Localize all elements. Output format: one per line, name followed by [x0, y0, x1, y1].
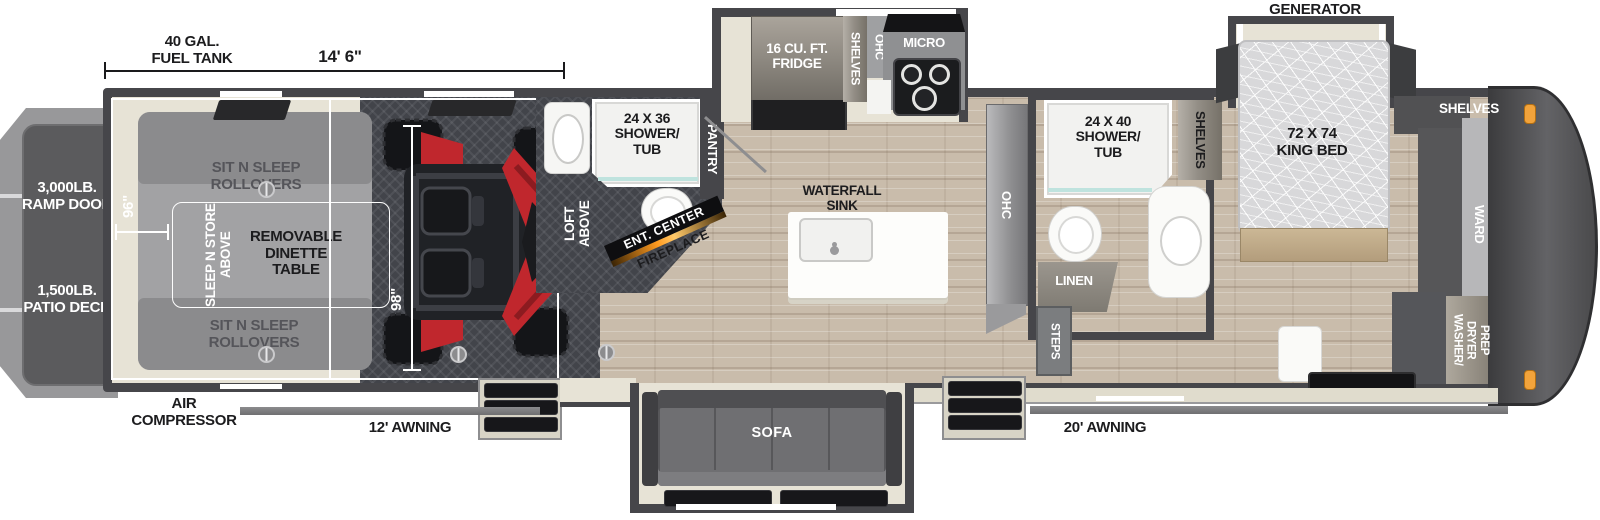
dim96-tick-right [167, 224, 169, 240]
garage-slide-divider [329, 98, 331, 380]
entry-landing-garage [560, 378, 636, 407]
washer-dryer-label: WASHER/ DRYER PREP [1448, 300, 1492, 380]
air-compressor-label: AIR COMPRESSOR [118, 396, 250, 429]
roof-vent-1 [213, 100, 291, 120]
bed-foot-bench [1240, 228, 1388, 262]
bottom-wall-strip-2 [1096, 396, 1184, 401]
dim98-line [411, 126, 413, 370]
king-bed-label: 72 X 74 KING BED [1244, 126, 1380, 159]
entry-steps-main-bar2 [948, 398, 1022, 413]
mid-bath-vanity-basin [552, 114, 584, 164]
burner-1 [901, 64, 922, 85]
awning-main-bar [1030, 406, 1508, 414]
entry-steps-main-bar1 [948, 381, 1022, 396]
top-wall-strip-1 [220, 91, 282, 97]
mid-shower-glass [598, 177, 698, 181]
length-dimension-label: 14' 6" [285, 48, 395, 67]
bedroom-dark-cabinet [1392, 292, 1446, 384]
bath-shelves-label: SHELVES [1188, 104, 1212, 176]
kitchen-counter-white [867, 80, 891, 114]
dim98-tick-top [403, 125, 421, 127]
awning-garage-label: 12' AWNING [340, 420, 480, 437]
bath-shower-glass [1048, 188, 1152, 192]
range-hood [883, 14, 965, 32]
fuel-tank-label: 40 GAL. FUEL TANK [122, 34, 262, 67]
bedroom-closet [1418, 128, 1466, 298]
bedroom-shelves-label: SHELVES [1436, 102, 1502, 117]
linen-label: LINEN [1038, 274, 1110, 288]
fridge-base-cabinet [751, 100, 847, 130]
loft-above-label: LOFT ABOVE [556, 178, 600, 270]
island-sink-basin [799, 218, 873, 262]
burner-2 [929, 64, 950, 85]
burner-3 [912, 86, 937, 111]
entry-steps-garage-bar1 [484, 383, 558, 398]
dim98-label: 98" [387, 270, 407, 330]
sofa-slide-strip [676, 504, 836, 510]
front-cap [1488, 86, 1598, 406]
bath-vanity-basin [1160, 216, 1202, 266]
kitchen-shelves-label: SHELVES [844, 20, 866, 98]
bolt-5 [598, 344, 615, 361]
ward-label: WARD [1466, 176, 1492, 272]
nightstand-right [1386, 42, 1416, 103]
marker-light-bottom [1524, 370, 1536, 390]
entry-steps-main-bar3 [948, 415, 1022, 430]
bottom-wall-strip-1 [220, 384, 282, 389]
bath-steps-label: STEPS [1040, 310, 1068, 372]
sofa-label: SOFA [702, 426, 842, 442]
micro-label: MICRO [883, 36, 965, 50]
awning-main-label: 20' AWNING [1030, 420, 1180, 437]
marker-light-top [1524, 104, 1536, 124]
entry-steps-garage-bar3 [484, 417, 558, 432]
fridge-label: 16 CU. FT. FRIDGE [751, 42, 843, 72]
dimension-tick-right [563, 62, 565, 79]
sofa-armrest-right [886, 392, 902, 486]
dim96-line [116, 231, 168, 233]
island-faucet [830, 246, 839, 255]
mid-shower-label: 24 X 36 SHOWER/ TUB [594, 111, 700, 157]
top-wall-strip-2 [424, 91, 514, 97]
roof-vent-2 [427, 100, 516, 116]
dim96-label: 96" [119, 184, 139, 230]
garage-slide-outline [111, 98, 559, 380]
length-dimension-line [105, 70, 565, 72]
waterfall-sink-label: WATERFALL SINK [786, 184, 898, 214]
dimension-tick-left [104, 62, 106, 79]
awning-garage-bar [240, 407, 540, 415]
bath-toilet-bowl [1058, 216, 1094, 254]
dim96-tick-left [115, 224, 117, 240]
dim98-tick-bottom [403, 369, 421, 371]
floorplan-canvas: 40 GAL. FUEL TANK 14' 6" 3,000LB. RAMP D… [0, 0, 1600, 520]
sofa-armrest-left [642, 392, 658, 486]
ohc-cabinet-label: OHC [994, 150, 1018, 260]
bath-shower-label: 24 X 40 SHOWER/ TUB [1046, 114, 1170, 160]
